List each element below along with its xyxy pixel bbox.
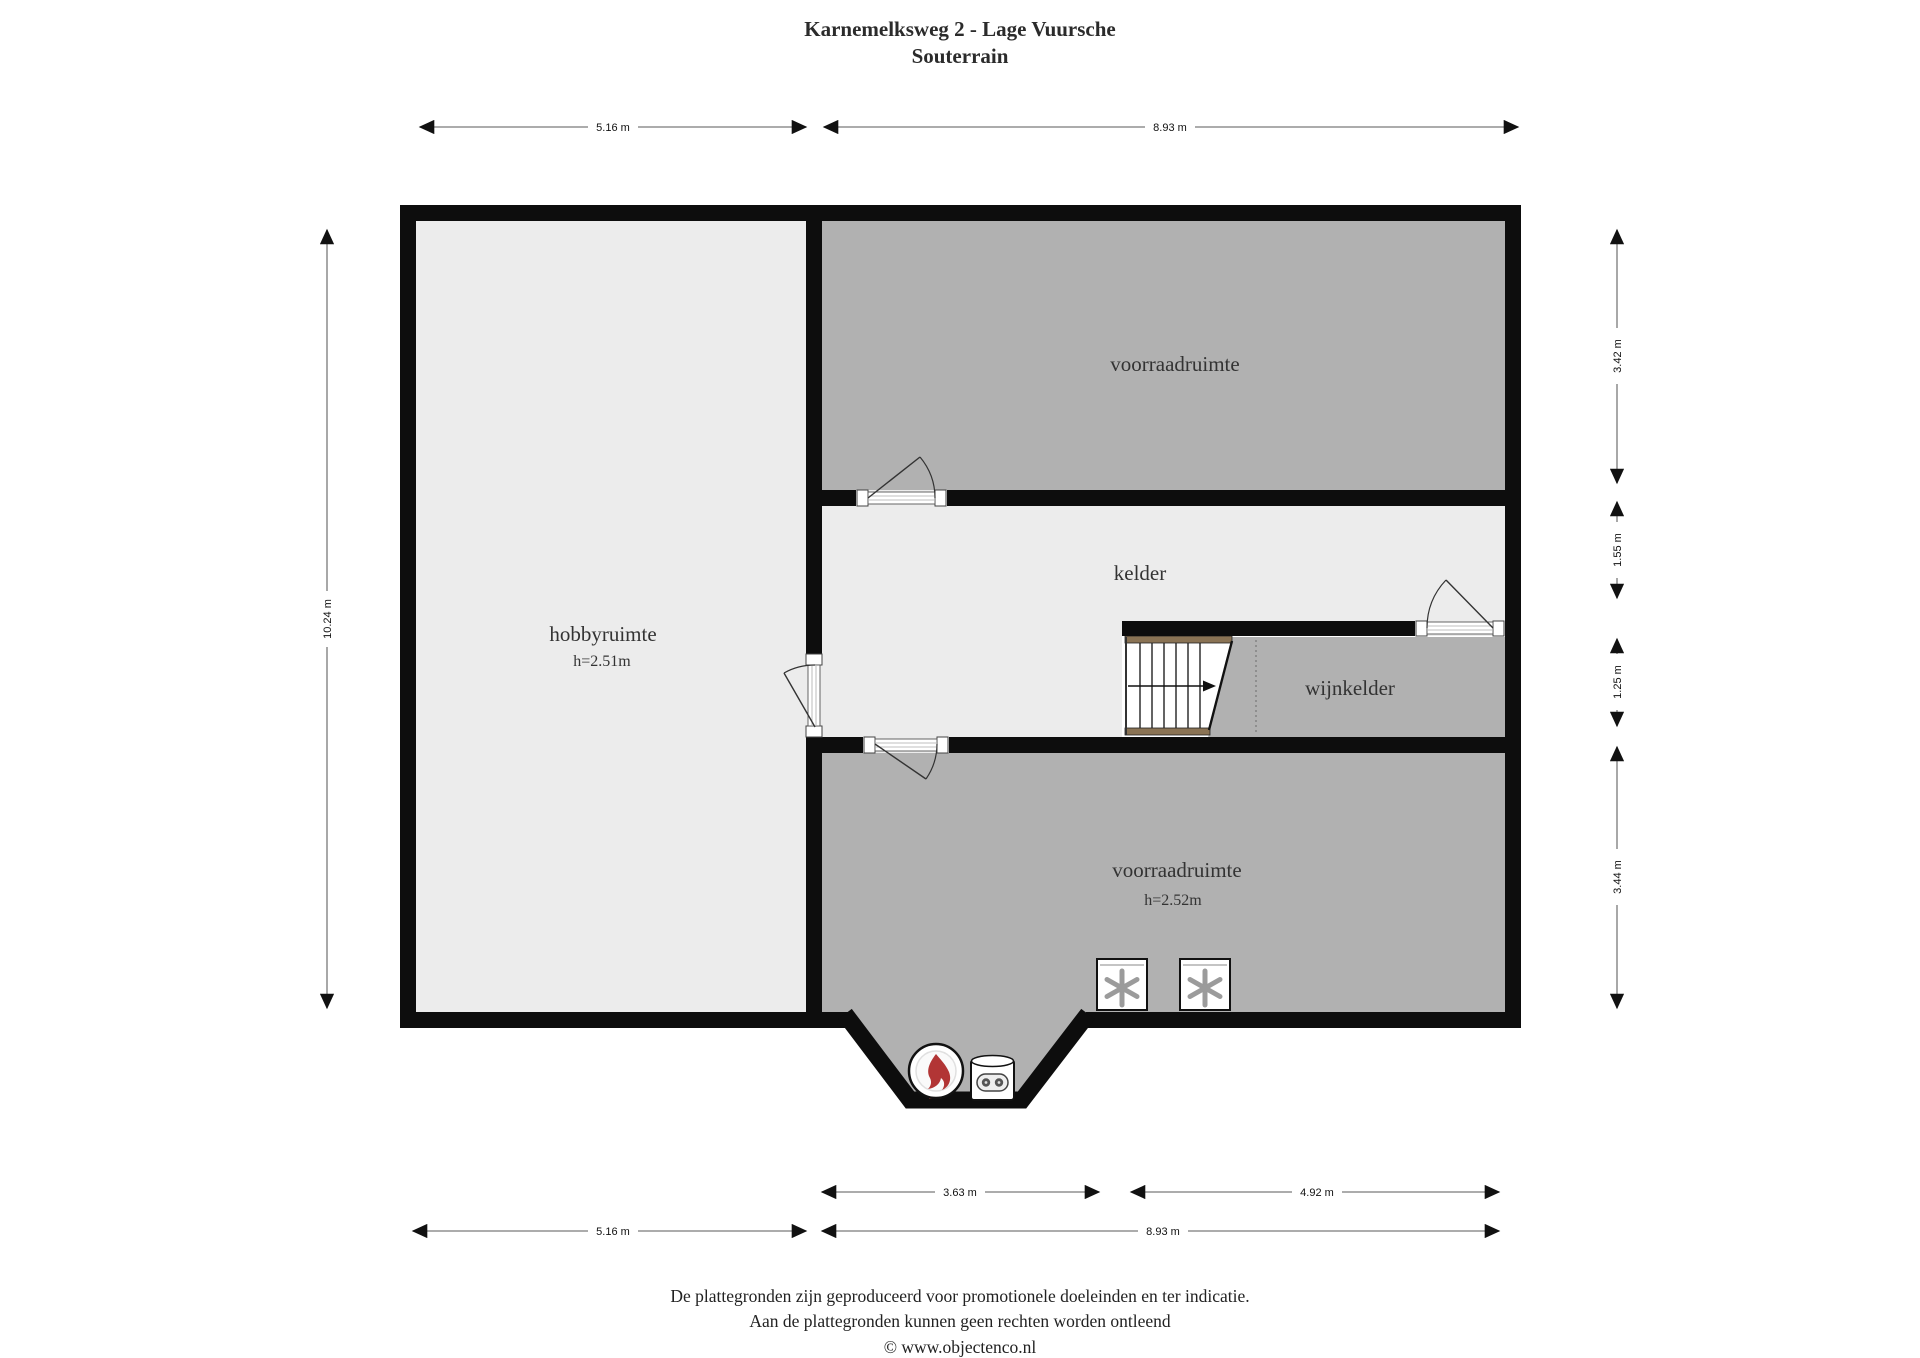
wall-bottom-right — [1086, 1012, 1521, 1028]
dim-bottom-outer-right: 8.93 m — [1146, 1226, 1180, 1238]
dim-right-3: 1.25 m — [1612, 665, 1624, 699]
copyright-line: © www.objectenco.nl — [0, 1335, 1920, 1358]
wall-divider — [806, 221, 822, 1012]
disclaimer: De plattegronden zijn geproduceerd voor … — [0, 1284, 1920, 1358]
door-a-jamb-left — [857, 490, 868, 506]
dim-left-total: 10.24 m — [322, 599, 334, 639]
wall-right — [1505, 205, 1521, 1028]
dim-bottom-inner-right: 4.92 m — [1300, 1187, 1334, 1199]
dim-right-4: 3.44 m — [1612, 860, 1624, 894]
wall-bottom-left — [400, 1012, 852, 1028]
label-kelder: kelder — [1114, 561, 1166, 585]
dim-bottom-inner-left: 3.63 m — [943, 1187, 977, 1199]
freezer-unit-2-icon — [1180, 959, 1230, 1010]
door-b-jamb-right — [1493, 621, 1504, 636]
water-heater-icon — [971, 1056, 1014, 1101]
disclaimer-line-2: Aan de plattegronden kunnen geen rechten… — [0, 1309, 1920, 1334]
dim-right-2: 1.55 m — [1612, 533, 1624, 567]
stair-bottom-rail — [1125, 728, 1210, 735]
floor-plan-page: Karnemelksweg 2 - Lage Vuursche Souterra… — [0, 0, 1920, 1358]
dim-right-1: 3.42 m — [1612, 339, 1624, 373]
label-hobbyruimte: hobbyruimte — [549, 622, 656, 646]
wall-top — [400, 205, 1521, 221]
stair-top-rail — [1125, 636, 1232, 643]
door-c-jamb-top — [806, 654, 822, 665]
boiler-icon — [909, 1044, 963, 1099]
dim-top-right: 8.93 m — [1153, 122, 1187, 134]
wall-left — [400, 205, 416, 1028]
door-b-jamb-left — [1416, 621, 1427, 636]
label-hobbyruimte-height: h=2.51m — [573, 653, 631, 670]
dim-top-left: 5.16 m — [596, 122, 630, 134]
label-voorraadruimte-bottom-height: h=2.52m — [1144, 892, 1202, 909]
door-d-jamb-left — [864, 737, 875, 753]
door-d-jamb-right — [937, 737, 948, 753]
floor-plan-drawing: 5.16 m 8.93 m 10.24 m 3.42 m 1.55 m 1.25… — [0, 0, 1920, 1358]
dim-bottom-outer-left: 5.16 m — [596, 1226, 630, 1238]
door-c-jamb-bottom — [806, 726, 822, 737]
disclaimer-line-1: De plattegronden zijn geproduceerd voor … — [0, 1284, 1920, 1309]
label-voorraadruimte-bottom: voorraadruimte — [1112, 858, 1241, 882]
door-a-leaf — [868, 492, 935, 504]
room-hobbyruimte — [416, 221, 806, 1012]
door-a-jamb-right — [935, 490, 946, 506]
door-b-leaf — [1427, 622, 1493, 634]
door-d-leaf — [875, 739, 937, 751]
label-voorraadruimte-top: voorraadruimte — [1110, 352, 1239, 376]
label-wijnkelder: wijnkelder — [1305, 676, 1395, 700]
freezer-unit-1-icon — [1097, 959, 1147, 1010]
